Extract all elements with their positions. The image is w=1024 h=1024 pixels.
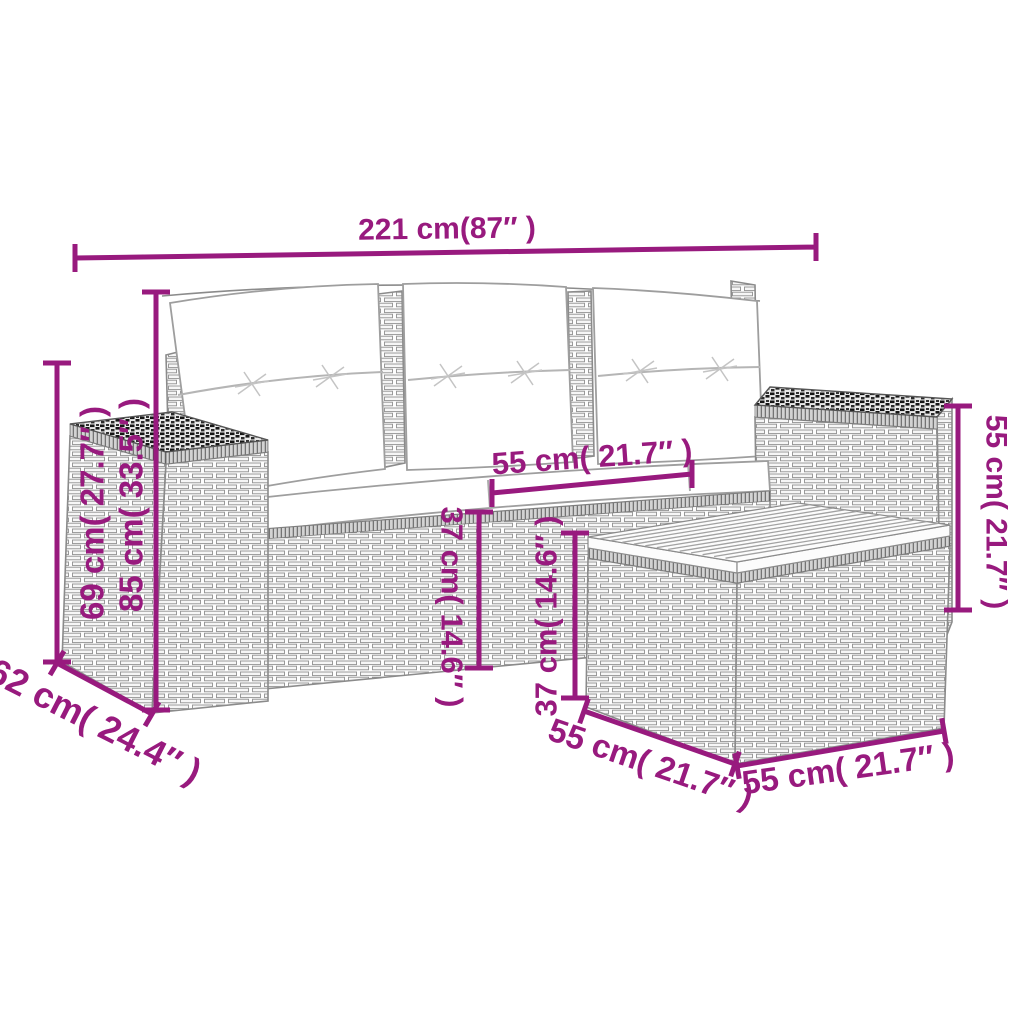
dim-overall-width-label: 221 cm(87″ ) (358, 211, 536, 246)
table-right-face (735, 546, 950, 764)
dim-overall-width: 221 cm(87″ ) (75, 211, 816, 272)
dim-side-height: 69 cm( 27.7″ ) (43, 363, 111, 662)
dim-armrest-height-label: 55 cm( 21.7″ ) (980, 415, 1013, 609)
product-dimension-image: 221 cm(87″ ) 69 cm( 27.7″ ) 85 cm( 33.5″… (0, 0, 1024, 1024)
left-armrest-front-face (152, 452, 268, 713)
sofa-set-drawing (62, 281, 952, 764)
dim-seat-height-label: 37 cm( 14.6″ ) (435, 507, 470, 708)
diagram-svg: 221 cm(87″ ) 69 cm( 27.7″ ) 85 cm( 33.5″… (0, 0, 1024, 1024)
dim-table-height-label: 37 cm( 14.6″ ) (529, 516, 564, 717)
dim-armrest-height: 55 cm( 21.7″ ) (944, 406, 1013, 610)
side-table (586, 503, 950, 764)
dim-back-height-label: 85 cm( 33.5″ ) (113, 398, 150, 612)
dim-side-height-label: 69 cm( 27.7″ ) (74, 406, 111, 620)
